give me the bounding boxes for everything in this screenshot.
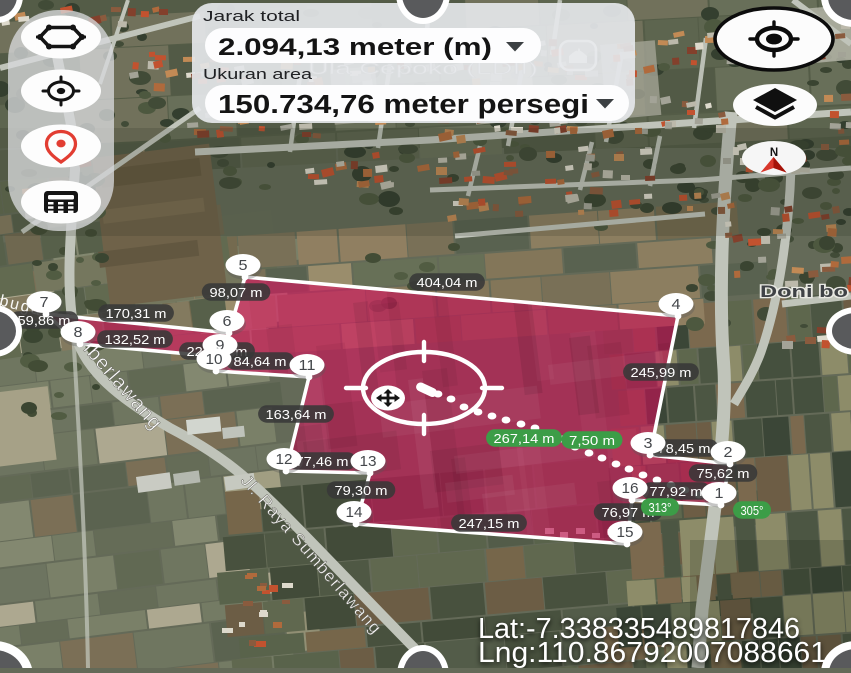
- svg-text:12: 12: [276, 451, 293, 468]
- svg-text:247,15 m: 247,15 m: [459, 516, 520, 531]
- svg-text:11: 11: [299, 357, 316, 374]
- svg-text:170,31 m: 170,31 m: [106, 306, 167, 321]
- svg-text:75,62 m: 75,62 m: [697, 466, 750, 481]
- svg-text:77,92 m: 77,92 m: [650, 484, 703, 499]
- svg-text:3: 3: [644, 435, 653, 452]
- svg-text:150.734,76 meter persegi: 150.734,76 meter persegi: [218, 91, 589, 119]
- svg-text:245,99 m: 245,99 m: [631, 365, 692, 380]
- svg-text:1: 1: [715, 485, 724, 502]
- svg-text:313°: 313°: [649, 500, 672, 515]
- svg-text:Jarak total: Jarak total: [203, 8, 300, 25]
- svg-text:6: 6: [223, 313, 232, 330]
- svg-text:79,30 m: 79,30 m: [335, 483, 388, 498]
- svg-text:14: 14: [346, 504, 363, 521]
- svg-text:Ukuran area: Ukuran area: [203, 66, 313, 83]
- svg-text:7: 7: [40, 294, 49, 311]
- svg-text:8: 8: [74, 324, 83, 341]
- svg-text:16: 16: [622, 480, 639, 497]
- svg-text:2: 2: [724, 444, 733, 461]
- svg-text:7,50 m: 7,50 m: [569, 433, 615, 448]
- svg-text:15: 15: [617, 524, 634, 541]
- svg-text:Lng:110.86792007088661: Lng:110.86792007088661: [478, 637, 827, 668]
- svg-text:10: 10: [206, 351, 223, 368]
- svg-text:305°: 305°: [741, 503, 764, 518]
- svg-text:13: 13: [360, 453, 377, 470]
- svg-text:84,64 m: 84,64 m: [234, 354, 287, 369]
- svg-text:267,14 m: 267,14 m: [494, 431, 555, 446]
- svg-text:77,46 m: 77,46 m: [296, 454, 349, 469]
- svg-text:132,52 m: 132,52 m: [105, 332, 166, 347]
- svg-text:404,04 m: 404,04 m: [417, 275, 478, 290]
- svg-text:98,07 m: 98,07 m: [210, 285, 263, 300]
- svg-text:N: N: [770, 147, 778, 159]
- svg-text:5: 5: [239, 257, 248, 274]
- svg-text:4: 4: [672, 296, 681, 313]
- svg-text:163,64 m: 163,64 m: [266, 407, 327, 422]
- svg-text:Doni bo: Doni bo: [760, 282, 848, 301]
- svg-text:2.094,13 meter (m): 2.094,13 meter (m): [218, 34, 492, 61]
